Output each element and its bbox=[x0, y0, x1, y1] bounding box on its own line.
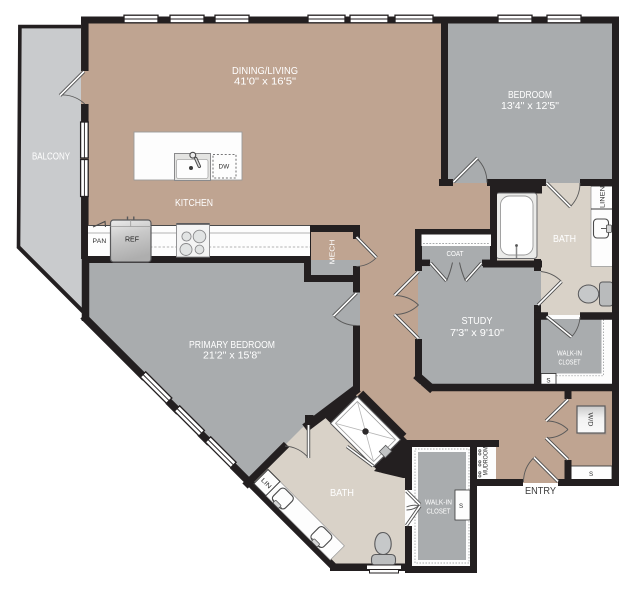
svg-text:7'3" x 9'10": 7'3" x 9'10" bbox=[450, 328, 504, 339]
svg-text:DW: DW bbox=[219, 164, 230, 171]
svg-text:MECH: MECH bbox=[330, 240, 337, 265]
svg-text:BEDROOM: BEDROOM bbox=[508, 90, 552, 101]
svg-text:BALCONY: BALCONY bbox=[32, 152, 70, 163]
svg-text:BATH: BATH bbox=[330, 488, 354, 499]
svg-text:COAT: COAT bbox=[447, 251, 465, 258]
svg-text:13'4" x 12'5": 13'4" x 12'5" bbox=[501, 101, 559, 112]
svg-text:S: S bbox=[546, 378, 550, 385]
svg-text:WALK-IN: WALK-IN bbox=[425, 500, 452, 507]
svg-text:DINING/LIVING: DINING/LIVING bbox=[232, 66, 298, 77]
svg-text:CLOSET: CLOSET bbox=[559, 360, 582, 367]
svg-text:WALK-IN: WALK-IN bbox=[557, 351, 582, 358]
svg-text:S: S bbox=[459, 503, 463, 510]
svg-text:BATH: BATH bbox=[553, 234, 576, 245]
svg-text:REF: REF bbox=[125, 237, 139, 244]
svg-text:ENTRY: ENTRY bbox=[525, 485, 556, 497]
svg-text:PRIMARY BEDROOM: PRIMARY BEDROOM bbox=[189, 340, 275, 351]
svg-text:STUDY: STUDY bbox=[462, 316, 493, 327]
svg-text:LINEN: LINEN bbox=[600, 185, 607, 208]
svg-text:CLOSET: CLOSET bbox=[427, 509, 452, 516]
svg-text:41'0" x 16'5": 41'0" x 16'5" bbox=[234, 77, 297, 88]
svg-text:21'2" x 15'8": 21'2" x 15'8" bbox=[203, 351, 261, 362]
svg-text:KITCHEN: KITCHEN bbox=[175, 198, 213, 209]
svg-text:W/D: W/D bbox=[587, 413, 594, 427]
svg-text:MUDROOM: MUDROOM bbox=[483, 447, 490, 476]
svg-text:S: S bbox=[589, 471, 593, 478]
svg-text:PAN: PAN bbox=[93, 238, 107, 245]
